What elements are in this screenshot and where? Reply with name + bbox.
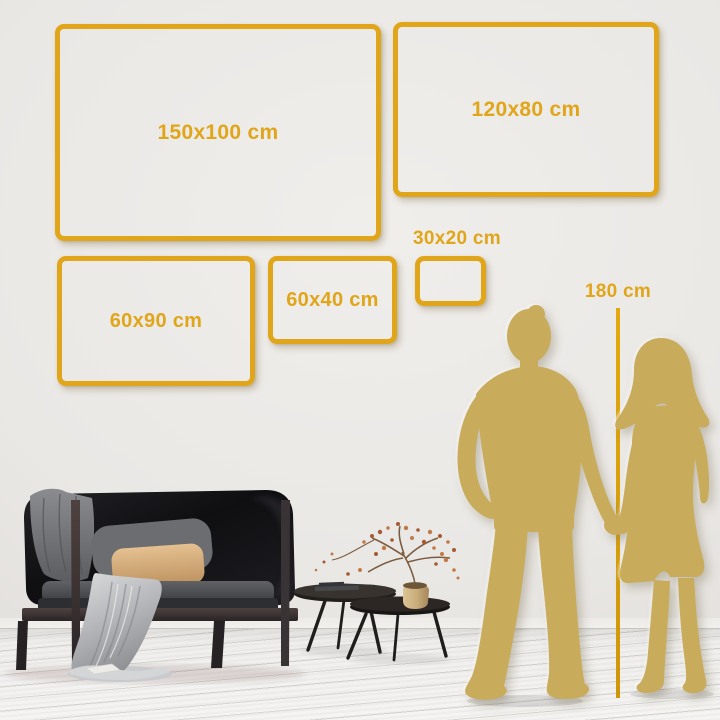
plant-branches — [332, 526, 450, 584]
frame-150x100: 150x100 cm — [55, 24, 381, 241]
frame-label-30x20: 30x20 cm — [413, 228, 501, 250]
frame-label-120x80: 120x80 cm — [472, 98, 581, 122]
size-guide-image: 150x100 cm 120x80 cm 60x90 cm 60x40 cm 3… — [0, 0, 720, 720]
woman-silhouette — [615, 338, 709, 693]
plant-blossoms — [315, 526, 460, 580]
frame-60x90: 60x90 cm — [57, 256, 255, 386]
sofa-scene — [0, 478, 320, 720]
frame-label-60x90: 60x90 cm — [110, 310, 202, 333]
pot-opening — [403, 582, 427, 589]
man-silhouette — [458, 305, 619, 700]
sofa-leg — [211, 621, 225, 668]
table-shadow — [350, 654, 450, 664]
frame-30x20 — [415, 256, 486, 306]
table-shadow — [300, 646, 388, 656]
table-top — [350, 597, 450, 612]
sofa-leg — [16, 621, 28, 670]
frame-60x40: 60x40 cm — [268, 256, 397, 344]
couple-silhouette — [440, 300, 720, 710]
frame-label-150x100: 150x100 cm — [158, 121, 279, 145]
frame-label-60x40: 60x40 cm — [286, 289, 378, 312]
plant-blossoms — [323, 522, 457, 576]
wood-rail — [22, 608, 298, 621]
book — [344, 579, 370, 584]
frame-120x80: 120x80 cm — [393, 22, 659, 197]
